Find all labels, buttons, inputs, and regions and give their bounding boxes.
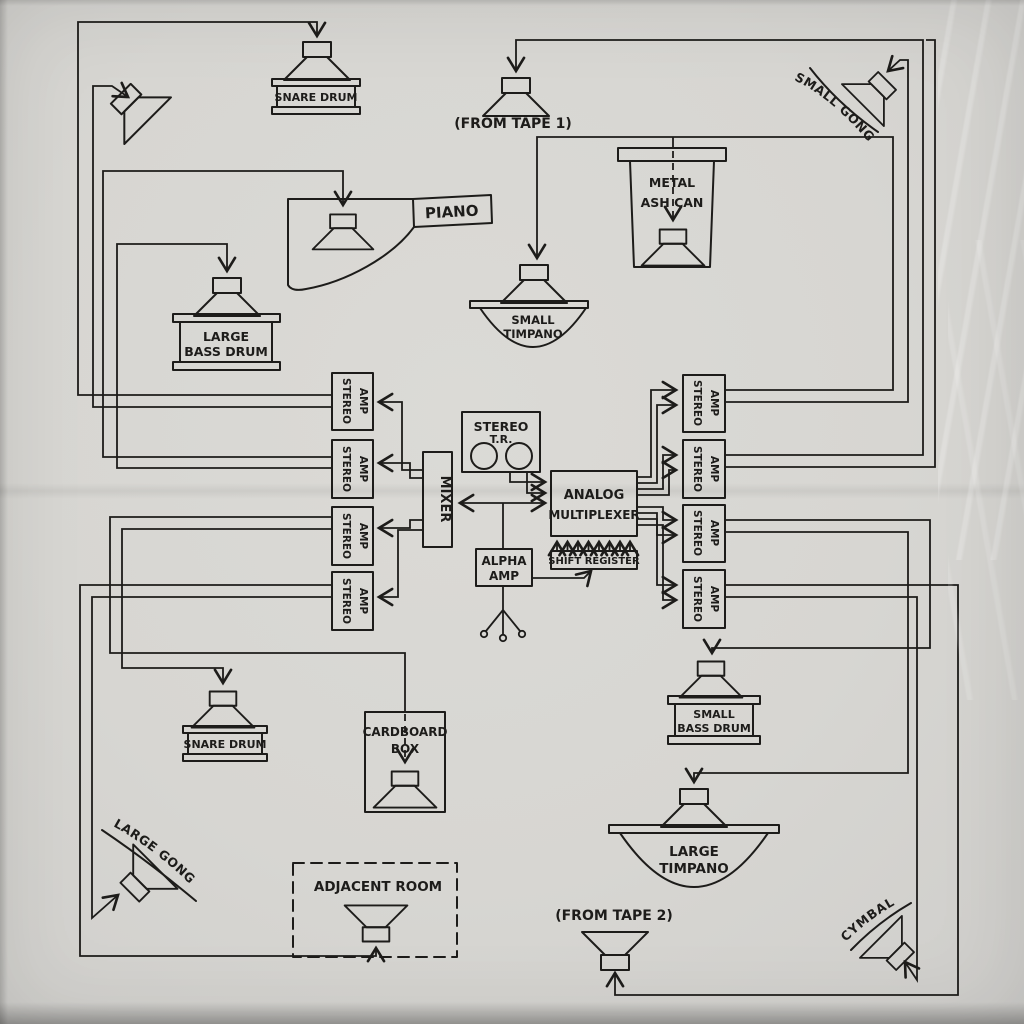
stereo-amp-label: STEREO — [691, 510, 703, 556]
stereo-amp-label: AMP — [357, 388, 369, 415]
shift-register-label: SHIFT REGISTER — [548, 556, 640, 567]
speaker-icon — [642, 230, 705, 266]
shift-register: SHIFT REGISTER — [548, 551, 640, 569]
speaker-icon — [374, 772, 437, 808]
instrument-small-bass-drum: SMALL BASS DRUM — [668, 696, 760, 744]
stereo-amp-label: AMP — [708, 390, 720, 417]
mixer: MIXER — [423, 452, 452, 547]
adjacent-room-label: ADJACENT ROOM — [314, 879, 442, 895]
instrument-metal-ash-can: METAL ASH CAN — [618, 148, 726, 267]
analog-multiplexer-label-2: MULTIPLEXER — [548, 508, 639, 522]
source-from-tape-2: (FROM TAPE 2) — [555, 908, 673, 924]
alpha-amp-label-1: ALPHA — [481, 554, 527, 568]
record-sleeve-diagram: SNARE DRUM PIANO LARGE BASS DRUM SMALL T… — [0, 0, 1024, 1024]
metal-ash-can-label-1: METAL — [649, 175, 695, 190]
speaker-icon — [582, 932, 648, 970]
from-tape-2-label: (FROM TAPE 2) — [555, 908, 673, 924]
svg-text:LARGE GONG: LARGE GONG — [111, 816, 198, 887]
instrument-small-timpano: SMALL TIMPANO — [470, 301, 588, 347]
analog-multiplexer: ANALOG MULTIPLEXER — [548, 471, 639, 536]
large-timpano-label-2: TIMPANO — [659, 861, 729, 877]
stereo-tr-label-1: STEREO — [474, 419, 529, 434]
metal-ash-can-label-2: ASH CAN — [641, 195, 704, 210]
wires — [78, 22, 958, 995]
cardboard-box-label-2: BOX — [391, 742, 420, 756]
stereo-tr-label-2: T.R. — [490, 433, 513, 446]
large-timpano-label-1: LARGE — [669, 844, 719, 860]
speaker-icon — [97, 70, 171, 144]
stereo-amp-label: STEREO — [340, 446, 352, 492]
svg-text:CYMBAL: CYMBAL — [838, 894, 898, 944]
instrument-large-timpano: LARGE TIMPANO — [609, 825, 779, 887]
speaker-icon — [680, 662, 743, 698]
stereo-amp-label: STEREO — [691, 380, 703, 426]
cymbal-label: CYMBAL — [838, 894, 898, 944]
speaker-icon — [661, 789, 727, 827]
large-bass-drum-label-1: LARGE — [203, 329, 249, 344]
speaker-icon — [194, 278, 260, 316]
piano-label: PIANO — [425, 202, 479, 223]
small-timpano-label-2: TIMPANO — [503, 327, 562, 341]
speaker-icon — [501, 265, 567, 303]
speakers — [97, 42, 926, 982]
stereo-amp-label: STEREO — [340, 378, 352, 424]
cardboard-box-label-1: CARDBOARD — [363, 725, 448, 739]
stereo-amp-label: AMP — [708, 586, 720, 613]
small-timpano-label-1: SMALL — [511, 313, 555, 327]
speaker-icon — [483, 78, 549, 116]
small-bass-drum-label-2: BASS DRUM — [677, 722, 751, 735]
instrument-snare-drum-top: SNARE DRUM — [272, 79, 360, 114]
stereo-amp-label: AMP — [357, 588, 369, 615]
stereo-amp-label: AMP — [357, 523, 369, 550]
stereo-amps-right: STEREO AMP STEREO AMP STEREO AMP STEREO … — [683, 375, 725, 628]
stereo-amp-label: AMP — [357, 456, 369, 483]
speaker-icon — [345, 905, 408, 941]
stereo-amp-label: AMP — [708, 520, 720, 547]
instrument-cymbal: CYMBAL — [838, 894, 912, 950]
stereo-amp-label: STEREO — [691, 446, 703, 492]
alpha-amp-label-2: AMP — [489, 569, 519, 583]
stereo-amps-left: STEREO AMP STEREO AMP STEREO AMP STEREO … — [332, 373, 373, 630]
from-tape-1-label: (FROM TAPE 1) — [454, 116, 572, 132]
mixer-label: MIXER — [437, 476, 452, 523]
instrument-large-bass-drum: LARGE BASS DRUM — [173, 314, 280, 370]
stereo-amp-label: STEREO — [691, 576, 703, 622]
snare-drum-top-label: SNARE DRUM — [275, 91, 358, 104]
stereo-amp-label: AMP — [708, 456, 720, 483]
source-from-tape-1: (FROM TAPE 1) — [454, 116, 572, 132]
speaker-icon — [192, 692, 255, 728]
stereo-tape-recorder: STEREO T.R. — [462, 412, 540, 472]
large-bass-drum-label-2: BASS DRUM — [184, 344, 268, 359]
alpha-amp: ALPHA AMP — [476, 549, 532, 586]
snare-drum-bottom-label: SNARE DRUM — [184, 738, 267, 751]
room-adjacent: ADJACENT ROOM — [293, 863, 457, 957]
stereo-amp-label: STEREO — [340, 578, 352, 624]
speaker-icon — [284, 42, 350, 80]
stereo-amp-label: STEREO — [340, 513, 352, 559]
instrument-cardboard-box: CARDBOARD BOX — [363, 712, 448, 812]
speaker-icon — [313, 214, 374, 249]
diagram-canvas: SNARE DRUM PIANO LARGE BASS DRUM SMALL T… — [0, 0, 1024, 1024]
small-bass-drum-label-1: SMALL — [693, 708, 734, 721]
analog-multiplexer-label-1: ANALOG — [564, 488, 625, 503]
large-gong-label: LARGE GONG — [111, 816, 198, 887]
instrument-snare-drum-bottom: SNARE DRUM — [183, 726, 267, 761]
